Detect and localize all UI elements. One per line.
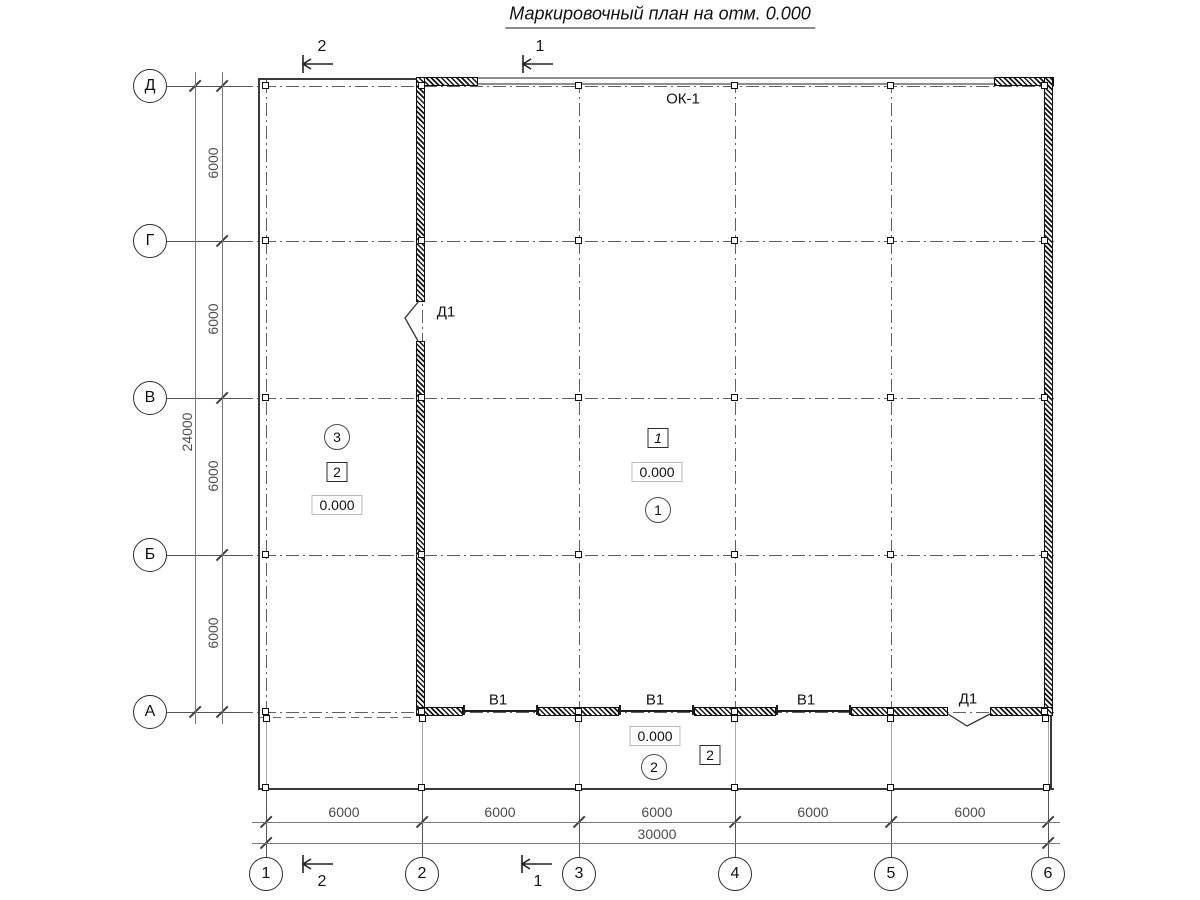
annex-hidden-edge (260, 717, 416, 718)
column-marker (887, 82, 894, 89)
drawing-sheet: Маркировочный план на отм. 0.000 2 1 2 1… (0, 0, 1200, 900)
room-circle-2: 2 (641, 754, 667, 780)
elevation-mark-bottom: 0.000 (629, 726, 680, 746)
section-number-1-bottom: 1 (534, 873, 543, 891)
axis-connector-line (422, 790, 423, 857)
room-circle-1: 1 (645, 497, 671, 523)
platform-axis-line (1048, 716, 1049, 788)
axis-leader-line (167, 398, 240, 399)
gate-jamb (619, 705, 621, 715)
column-marker (575, 394, 582, 401)
axis-line-row (240, 241, 1054, 242)
column-marker (731, 394, 738, 401)
annex-top-edge (258, 78, 418, 80)
gate-jamb (776, 705, 778, 715)
gate-line-v1-2 (619, 710, 694, 712)
column-marker (418, 708, 425, 715)
column-marker (262, 551, 269, 558)
column-marker (418, 82, 425, 89)
wall-left-upper (416, 77, 425, 302)
column-marker (575, 551, 582, 558)
platform-bottom-edge (258, 788, 1054, 790)
column-marker (418, 394, 425, 401)
dim-6000-h1: 6000 (328, 804, 359, 820)
annex-left-edge (258, 78, 260, 790)
elevation-mark-left: 0.000 (311, 495, 362, 515)
dim-line-30000 (252, 843, 1060, 844)
axis-bubble-row-g: Г (133, 224, 167, 258)
column-marker (731, 708, 738, 715)
column-marker (731, 715, 738, 722)
platform-right-edge (1050, 716, 1052, 789)
axis-connector-line (735, 790, 736, 857)
room-box-1-center: 1 (648, 428, 669, 448)
wall-top-left-segment (416, 77, 478, 86)
dim-24000: 24000 (179, 413, 195, 452)
column-marker (1041, 708, 1048, 715)
axis-connector-line (891, 790, 892, 857)
column-marker (731, 551, 738, 558)
column-marker (262, 784, 269, 791)
dim-6000-v2: 6000 (205, 303, 221, 334)
door-leaf-d1-bottom (946, 713, 992, 729)
dim-line-6000-vertical (222, 72, 223, 724)
dim-6000-h4: 6000 (797, 804, 828, 820)
column-marker (263, 715, 270, 722)
column-marker (262, 708, 269, 715)
axis-bubble-col-4: 4 (718, 857, 752, 891)
gate-mark-v1-1: В1 (489, 692, 507, 709)
gate-jamb (849, 705, 851, 715)
door-leaf-d1-left (402, 299, 422, 343)
column-marker (262, 82, 269, 89)
axis-bubble-col-2: 2 (405, 857, 439, 891)
axis-connector-line (579, 790, 580, 857)
axis-bubble-row-a: А (133, 695, 167, 729)
dim-6000-h2: 6000 (484, 804, 515, 820)
axis-leader-line (167, 86, 240, 87)
axis-bubble-col-5: 5 (874, 857, 908, 891)
column-marker (262, 237, 269, 244)
column-marker (1041, 394, 1048, 401)
dim-line-24000 (195, 72, 196, 724)
column-marker (1041, 237, 1048, 244)
axis-bubble-col-1: 1 (249, 857, 283, 891)
room-box-2-bottom: 2 (700, 745, 721, 765)
column-marker (887, 237, 894, 244)
axis-bubble-row-b: Б (133, 538, 167, 572)
window-mark-ok1: ОК-1 (666, 91, 700, 108)
wall-bottom-seg4 (851, 707, 948, 716)
dim-6000-h3: 6000 (641, 804, 672, 820)
column-marker (731, 784, 738, 791)
section-number-2-bottom: 2 (318, 873, 327, 891)
axis-bubble-col-6: 6 (1031, 857, 1065, 891)
column-marker (731, 237, 738, 244)
room-circle-3: 3 (324, 424, 350, 450)
axis-bubble-row-v: В (133, 381, 167, 415)
column-marker (575, 784, 582, 791)
column-marker (418, 551, 425, 558)
axis-leader-line (167, 555, 240, 556)
platform-axis-line (266, 716, 267, 788)
column-marker (418, 784, 425, 791)
platform-axis-line (735, 716, 736, 788)
column-marker (418, 237, 425, 244)
platform-axis-line (891, 716, 892, 788)
column-marker (1042, 715, 1049, 722)
axis-leader-line (167, 241, 240, 242)
column-marker (887, 715, 894, 722)
platform-axis-line (422, 716, 423, 788)
dim-line-6000-horizontal (252, 822, 1060, 823)
dim-6000-v1: 6000 (205, 147, 221, 178)
column-marker (887, 708, 894, 715)
column-marker (1041, 551, 1048, 558)
column-marker (575, 715, 582, 722)
gate-jamb (463, 705, 465, 715)
axis-connector-line (1048, 790, 1049, 857)
gate-line-v1-3 (776, 710, 851, 712)
column-marker (419, 715, 426, 722)
column-marker (887, 394, 894, 401)
column-marker (1043, 784, 1050, 791)
gate-jamb (536, 705, 538, 715)
dim-6000-h5: 6000 (954, 804, 985, 820)
column-marker (1041, 82, 1048, 89)
column-marker (575, 708, 582, 715)
dim-6000-v3: 6000 (205, 460, 221, 491)
elevation-mark-center: 0.000 (631, 462, 682, 482)
section-number-2-top: 2 (318, 38, 327, 56)
gate-line-v1-1 (463, 710, 538, 712)
column-marker (887, 784, 894, 791)
gate-mark-v1-3: В1 (797, 692, 815, 709)
axis-bubble-row-d: Д (133, 69, 167, 103)
column-marker (575, 82, 582, 89)
drawing-title: Маркировочный план на отм. 0.000 (505, 4, 815, 29)
room-box-2-left: 2 (327, 462, 348, 482)
door-mark-d1-left: Д1 (437, 304, 456, 321)
axis-line-row (240, 398, 1054, 399)
axis-line-row (240, 86, 1054, 87)
gate-mark-v1-2: В1 (646, 692, 664, 709)
platform-axis-line (579, 716, 580, 788)
column-marker (262, 394, 269, 401)
column-marker (575, 237, 582, 244)
axis-line-row (240, 555, 1054, 556)
axis-connector-line (266, 790, 267, 857)
column-marker (731, 82, 738, 89)
column-marker (887, 551, 894, 558)
gate-jamb (692, 705, 694, 715)
dim-30000: 30000 (638, 826, 677, 842)
door-mark-d1-bottom: Д1 (959, 691, 978, 708)
axis-bubble-col-3: 3 (562, 857, 596, 891)
section-number-1-top: 1 (536, 38, 545, 56)
dim-6000-v4: 6000 (205, 617, 221, 648)
axis-leader-line (167, 712, 240, 713)
